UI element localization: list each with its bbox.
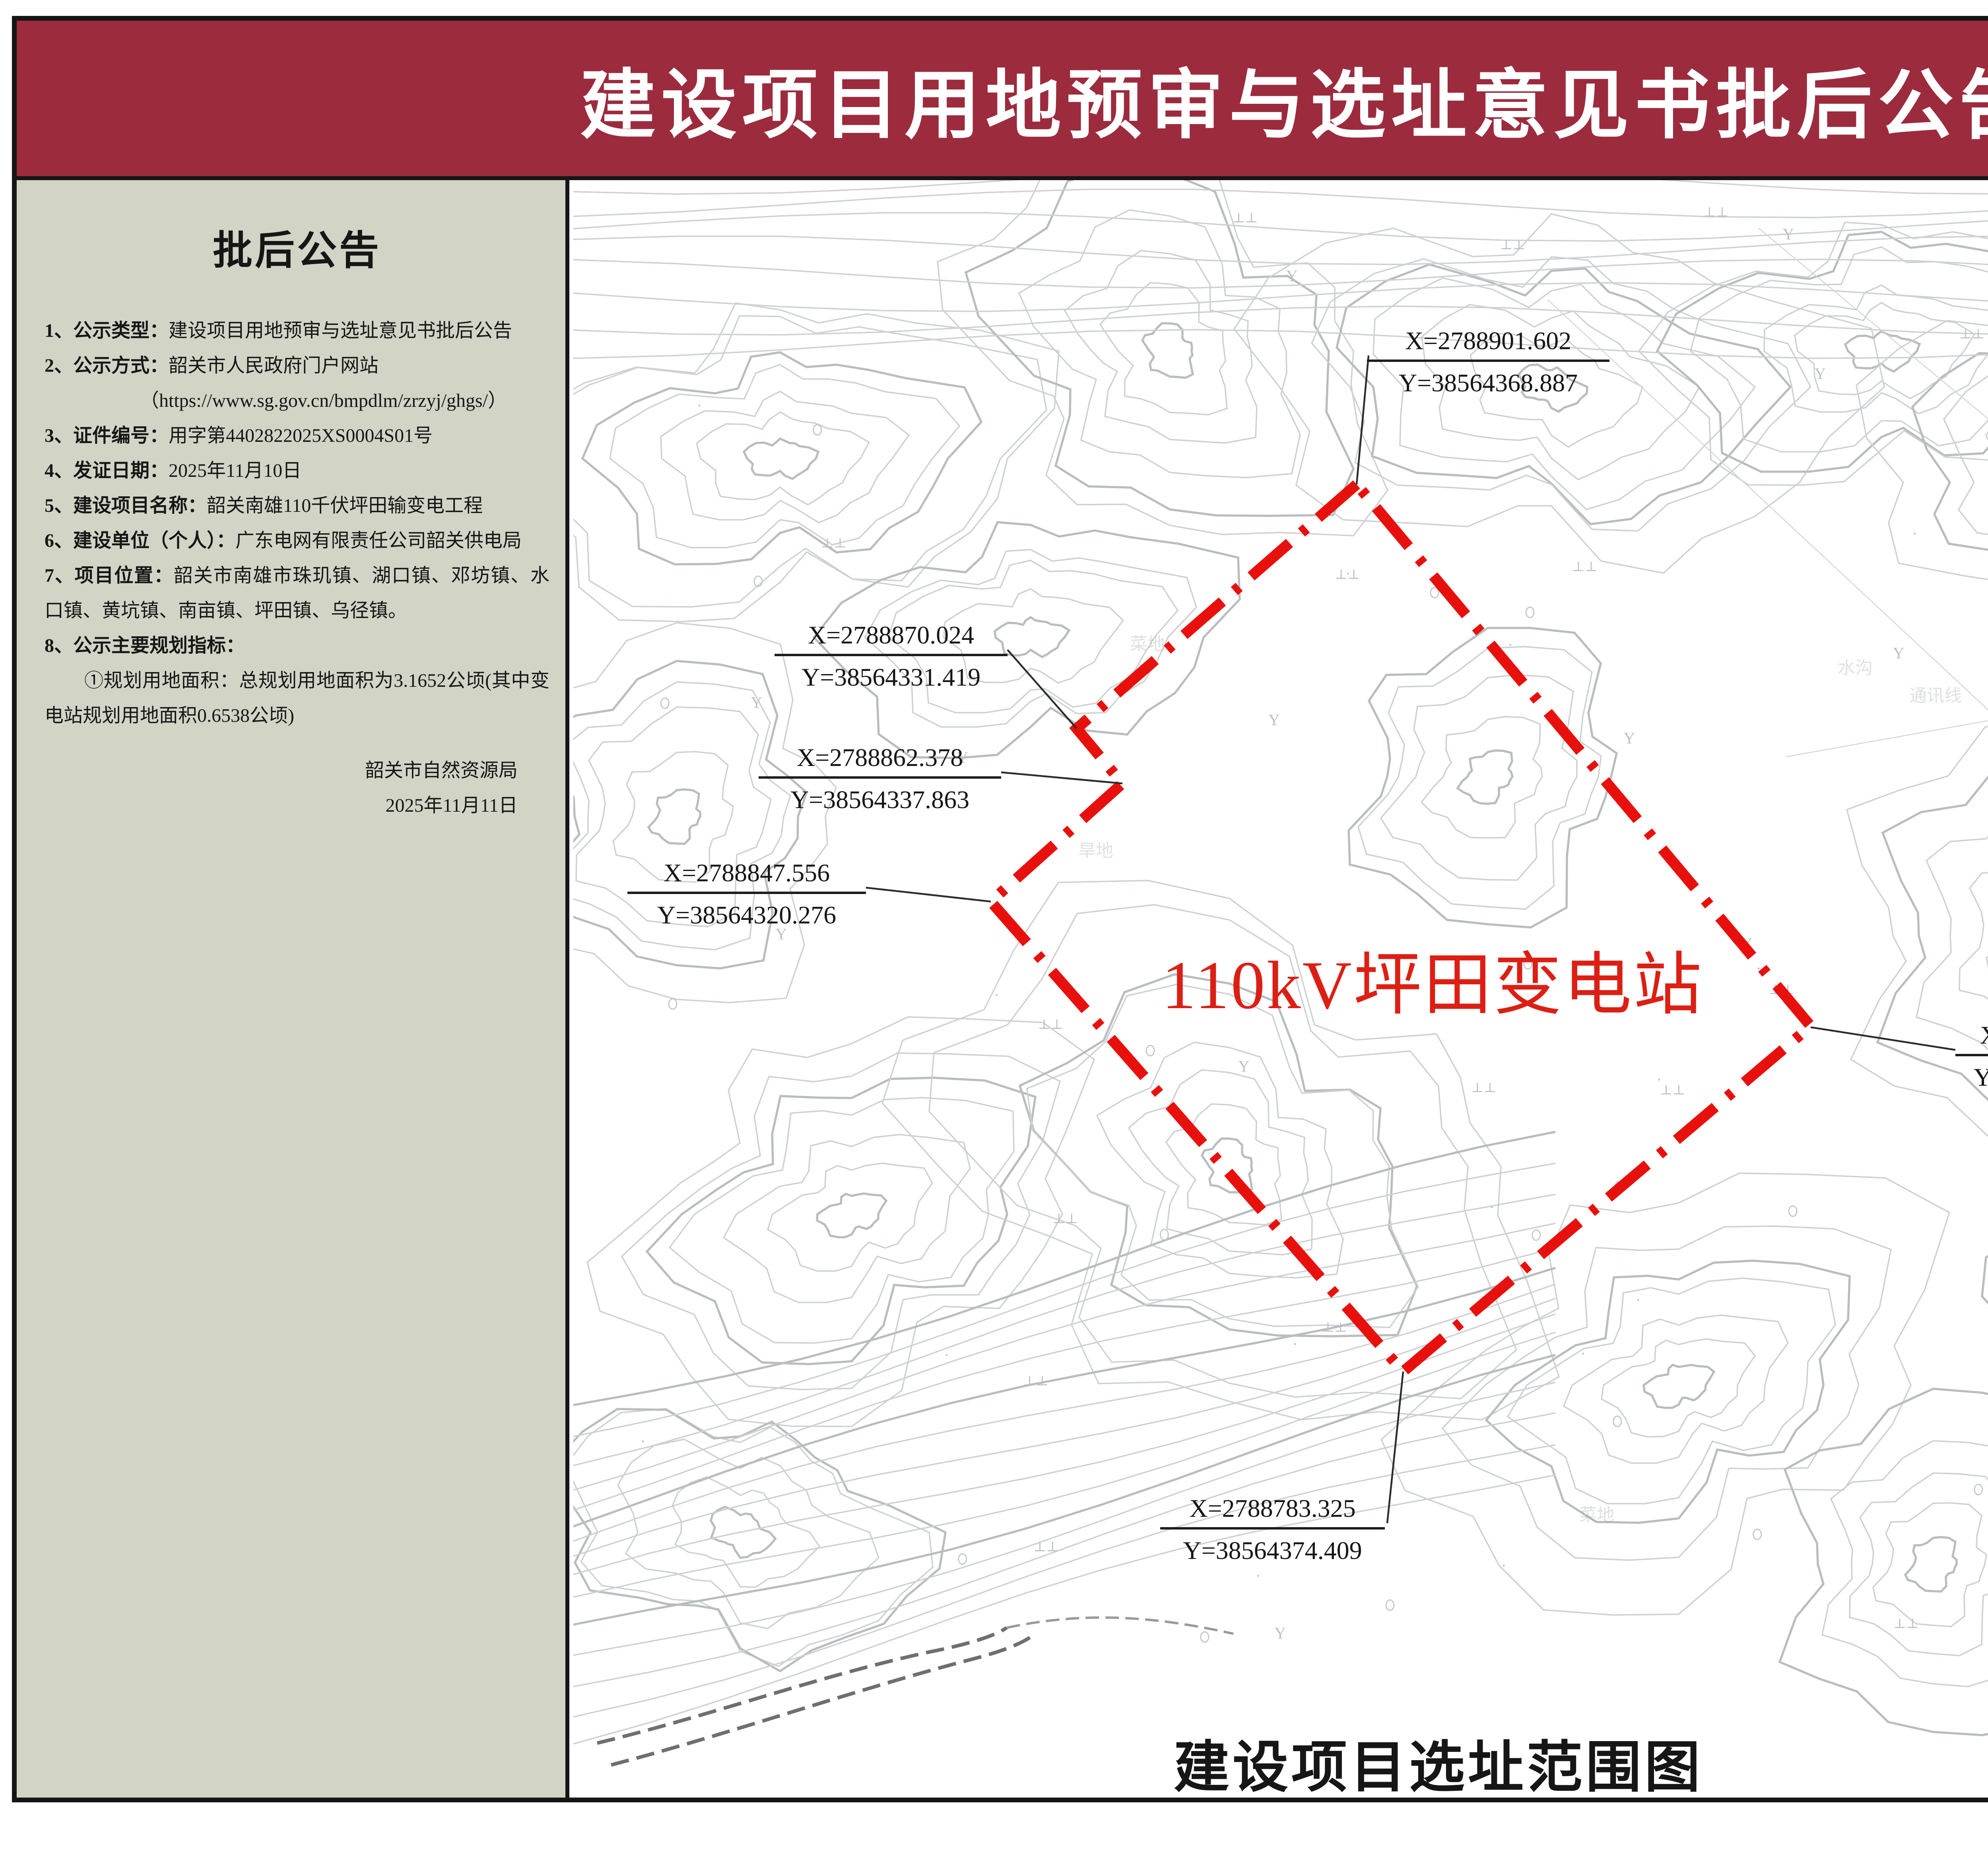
svg-text:⊥⊥: ⊥⊥ [1233, 211, 1258, 225]
svg-text:⊥⊥: ⊥⊥ [1572, 560, 1598, 574]
svg-text:⊥⊥: ⊥⊥ [1322, 1320, 1347, 1335]
svg-text:·: · [1489, 1198, 1494, 1216]
svg-text:Y: Y [1238, 1057, 1250, 1075]
coord-x-value: X=2788862.378 [759, 732, 1001, 776]
notice-item-project-name: 5、建设项目名称：韶关南雄110千伏坪田输变电工程 [45, 488, 549, 523]
substation-label: 110kV坪田变电站 [1162, 929, 1703, 1028]
sidebar-heading: 批后公告 [45, 218, 549, 276]
svg-text:⊥⊥: ⊥⊥ [1500, 237, 1525, 252]
svg-text:⊥⊥: ⊥⊥ [1959, 327, 1985, 342]
svg-text:Y: Y [1893, 644, 1905, 662]
coord-y-value: Y=38564331.419 [775, 656, 1008, 692]
page-title: 建设项目用地预审与选址意见书批后公告 [580, 44, 1988, 153]
svg-text:Y: Y [1268, 711, 1280, 729]
site-map: ⊥⊥Y·⊥⊥Y·⊥⊥Y·⊥⊥Y·⊥⊥Y·⊥⊥Y·⊥⊥Y·⊥⊥Y·⊥⊥Y·⊥⊥Y·… [573, 180, 1988, 1798]
coord-callout-west2: X=2788862.378 Y=38564337.863 [759, 732, 1001, 814]
svg-text:·: · [994, 986, 999, 1004]
signature-date: 2025年11月11日 [45, 788, 518, 823]
notice-item-type: 1、公示类型：建设项目用地预审与选址意见书批后公告 [45, 313, 549, 348]
coord-y-value: Y=38564337.863 [759, 779, 1001, 814]
svg-text:·: · [1912, 525, 1917, 542]
svg-text:⊥⊥: ⊥⊥ [1471, 1081, 1497, 1095]
coord-x-value: X=2788783.325 [1160, 1483, 1385, 1527]
notice-item-location: 7、项目位置：韶关市南雄市珠玑镇、湖口镇、邓坊镇、水口镇、黄坑镇、南亩镇、坪田镇… [45, 558, 549, 628]
svg-text:·: · [640, 1432, 645, 1450]
utility-lines [1547, 228, 1988, 836]
svg-text:·: · [697, 396, 702, 414]
notice-item-certificate-no: 3、证件编号：用字第4402822025XS0004S01号 [45, 418, 549, 453]
svg-text:⊥⊥: ⊥⊥ [821, 536, 846, 551]
coord-y-value: Y=38564320.276 [627, 894, 866, 930]
landuse-label: 旱地 [1078, 836, 1113, 862]
svg-text:·: · [1635, 1291, 1640, 1309]
landuse-label: 菜地 [1579, 1500, 1614, 1526]
notice-item-indicators: 8、公示主要规划指标： [45, 628, 549, 663]
svg-text:·: · [1580, 1345, 1586, 1362]
svg-text:·: · [1756, 960, 1761, 978]
coord-y-value: Y=38564374.409 [1160, 1530, 1385, 1565]
svg-text:⊥⊥: ⊥⊥ [1893, 1617, 1919, 1631]
coord-callout-west1: X=2788870.024 Y=38564331.419 [775, 609, 1008, 692]
notice-item-issue-date: 4、发证日期：2025年11月10日 [45, 453, 549, 488]
coord-y-value: Y=38564429.465 [1955, 1056, 1988, 1092]
svg-text:⊥⊥: ⊥⊥ [1660, 1083, 1685, 1098]
svg-text:Y: Y [1814, 365, 1826, 383]
banner-divider [17, 176, 1988, 180]
svg-text:·: · [1256, 1567, 1261, 1585]
coord-callout-west3: X=2788847.556 Y=38564320.276 [627, 847, 866, 930]
notice-item-builder: 6、建设单位（个人）：广东电网有限责任公司韶关供电局 [45, 523, 549, 558]
svg-text:·: · [1501, 1557, 1506, 1574]
svg-text:⊥⊥: ⊥⊥ [1023, 1374, 1048, 1388]
notice-item-land-area: ①规划用地面积：总规划用地面积为3.1652公顷(其中变电站规划用地面积0.65… [45, 663, 549, 733]
svg-text:Y: Y [1274, 1624, 1286, 1642]
notice-item-url: （https://www.sg.gov.cn/bmpdlm/zrzyj/ghgs… [45, 383, 549, 418]
svg-text:Y: Y [1623, 729, 1635, 747]
coord-x-value: X=2788847.556 [627, 847, 866, 892]
coord-x-value: X=2788870.024 [775, 609, 1008, 654]
svg-text:Y: Y [1782, 225, 1794, 243]
title-banner: 建设项目用地预审与选址意见书批后公告 [17, 21, 1988, 176]
svg-text:⊥⊥: ⊥⊥ [1703, 205, 1728, 220]
planning-redline-boundary [991, 484, 1811, 1372]
svg-text:⊥⊥: ⊥⊥ [1335, 568, 1360, 582]
svg-text:⊥⊥: ⊥⊥ [1052, 1212, 1078, 1226]
svg-text:Y: Y [1286, 267, 1298, 285]
svg-text:⊥⊥: ⊥⊥ [1034, 1539, 1059, 1554]
map-caption: 建设项目选址范围图 [1061, 1722, 1816, 1798]
coord-callout-south: X=2788783.325 Y=38564374.409 [1160, 1483, 1385, 1565]
landuse-label: 水沟 [1838, 653, 1873, 679]
coord-x-value: X=2788901.602 [1367, 315, 1609, 360]
coord-x-value: X=2788829.725 [1955, 1009, 1988, 1054]
svg-text:·: · [944, 1346, 949, 1364]
svg-text:Y: Y [751, 694, 762, 711]
coord-callout-east: X=2788829.725 Y=38564429.465 [1955, 1009, 1988, 1092]
coord-y-value: Y=38564368.887 [1367, 362, 1609, 398]
landuse-label: 菜地 [1130, 630, 1165, 655]
notice-sidebar: 批后公告 1、公示类型：建设项目用地预审与选址意见书批后公告 2、公示方式：韶关… [17, 180, 569, 1798]
coord-callout-north: X=2788901.602 Y=38564368.887 [1367, 315, 1609, 398]
notice-item-method: 2、公示方式：韶关市人民政府门户网站 [45, 348, 549, 383]
signature-block: 韶关市自然资源局 2025年11月11日 [45, 753, 549, 823]
svg-text:·: · [1508, 636, 1513, 654]
svg-text:⊥⊥: ⊥⊥ [1038, 1017, 1063, 1032]
svg-text:·: · [1293, 1335, 1298, 1353]
producer-credit: 监制单位：韶关市自然资源局 [1749, 1809, 1988, 1848]
landuse-label: 通讯线 [1909, 681, 1962, 707]
signature-org: 韶关市自然资源局 [45, 753, 518, 788]
